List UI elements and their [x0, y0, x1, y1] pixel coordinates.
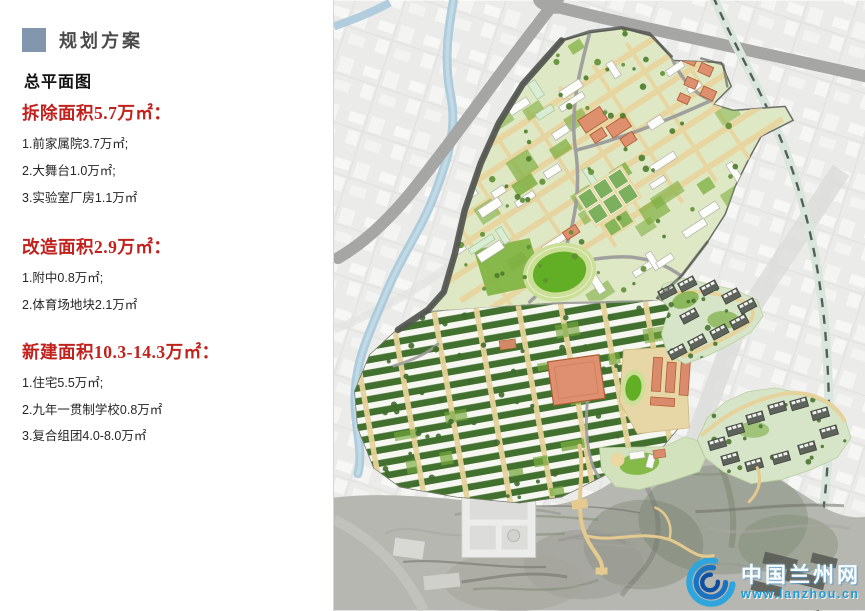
header-square-icon [22, 28, 46, 52]
list-item: 1.前家属院3.7万㎡; [22, 138, 333, 152]
lanzhou-logo-icon [684, 558, 736, 607]
subtitle: 总平面图 [24, 68, 333, 92]
list-item: 2.大舞台1.0万㎡; [22, 165, 333, 179]
planning-slide: 规划方案 总平面图 拆除面积5.7万㎡： 1.前家属院3.7万㎡; 2.大舞台1… [0, 0, 865, 611]
list-item: 2.体育场地块2.1万㎡ [22, 299, 333, 313]
list-item: 1.附中0.8万㎡; [22, 272, 333, 286]
section-demolition-items: 1.前家属院3.7万㎡; 2.大舞台1.0万㎡; 3.实验室厂房1.1万㎡ [22, 138, 333, 205]
logo-text: 中国兰州网 www.lanzhou.cn [741, 565, 861, 601]
list-item: 2.九年一贯制学校0.8万㎡ [22, 404, 333, 418]
info-panel: 规划方案 总平面图 拆除面积5.7万㎡： 1.前家属院3.7万㎡; 2.大舞台1… [0, 0, 333, 611]
logo-site-name: 中国兰州网 [741, 565, 861, 586]
site-logo: 中国兰州网 www.lanzhou.cn [684, 558, 861, 607]
section-demolition-heading: 拆除面积5.7万㎡： [22, 100, 333, 125]
section-newbuild-items: 1.住宅5.5万㎡; 2.九年一贯制学校0.8万㎡ 3.复合组团4.0-8.0万… [22, 377, 333, 444]
section-renovation-heading: 改造面积2.9万㎡： [22, 234, 333, 259]
list-item: 3.复合组团4.0-8.0万㎡ [22, 430, 333, 444]
assembly-hall [548, 355, 606, 406]
list-item: 3.实验室厂房1.1万㎡ [22, 192, 333, 206]
master-plan-map: 中国兰州网 www.lanzhou.cn [333, 0, 865, 611]
section-renovation-items: 1.附中0.8万㎡; 2.体育场地块2.1万㎡ [22, 272, 333, 313]
list-item: 1.住宅5.5万㎡; [22, 377, 333, 391]
page-title: 规划方案 [59, 27, 143, 53]
panel-header: 规划方案 [22, 27, 333, 53]
logo-site-url: www.lanzhou.cn [741, 588, 861, 601]
section-newbuild-heading: 新建面积10.3-14.3万㎡： [22, 339, 333, 364]
